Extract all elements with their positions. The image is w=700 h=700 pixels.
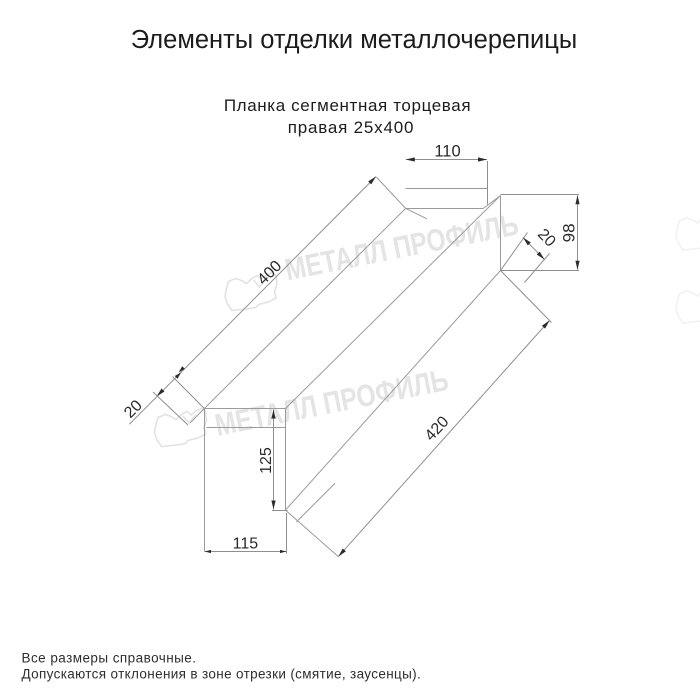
svg-text:Все размеры справочные.: Все размеры справочные. (22, 651, 197, 666)
svg-text:20: 20 (121, 397, 146, 422)
svg-text:правая 25x400: правая 25x400 (288, 118, 415, 137)
svg-text:Планка сегментная торцевая: Планка сегментная торцевая (224, 96, 471, 115)
svg-text:Элементы отделки металлочерепи: Элементы отделки металлочерепицы (131, 26, 577, 54)
svg-text:110: 110 (434, 143, 460, 161)
svg-text:98: 98 (560, 223, 579, 242)
svg-text:20: 20 (534, 226, 559, 251)
svg-text:МЕТАЛЛ ПРОФИЛЬ: МЕТАЛЛ ПРОФИЛЬ (282, 207, 521, 288)
svg-text:400: 400 (254, 258, 285, 289)
svg-text:МЕТАЛЛ ПРОФИЛЬ: МЕТАЛЛ ПРОФИЛЬ (212, 362, 451, 443)
svg-text:115: 115 (233, 536, 259, 553)
svg-text:420: 420 (422, 413, 453, 444)
svg-text:125: 125 (258, 447, 275, 474)
svg-text:Допускаются отклонения в зоне: Допускаются отклонения в зоне отрезки (с… (22, 667, 422, 682)
